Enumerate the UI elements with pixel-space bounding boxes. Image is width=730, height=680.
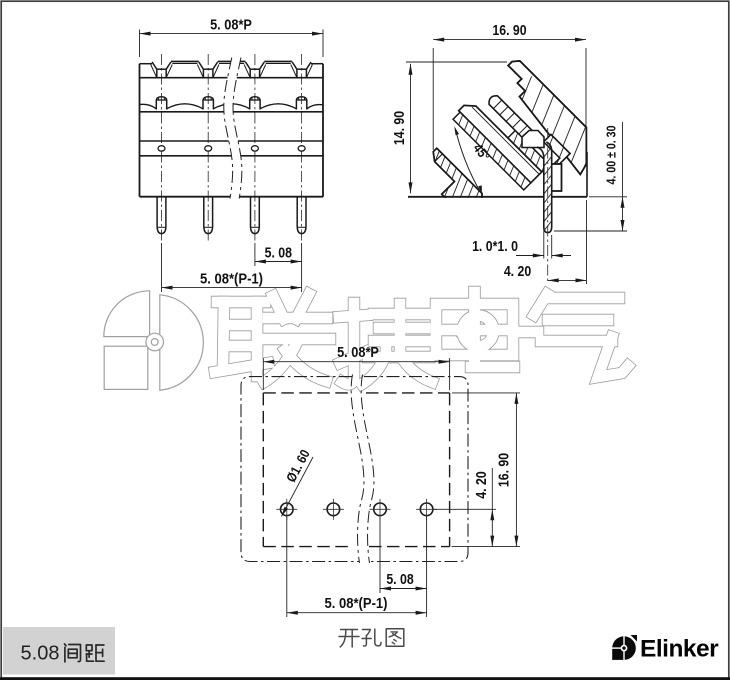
svg-text:14. 90: 14. 90 <box>391 111 407 145</box>
svg-text:16. 90: 16. 90 <box>496 453 512 487</box>
svg-text:5. 08: 5. 08 <box>265 244 293 260</box>
svg-text:5. 08*P: 5. 08*P <box>337 344 379 360</box>
svg-text:5. 08*P: 5. 08*P <box>210 17 252 33</box>
svg-text:Elinker: Elinker <box>640 636 719 663</box>
svg-text:4. 00 ± 0. 30: 4. 00 ± 0. 30 <box>605 126 619 185</box>
svg-text:5. 08*(P-1): 5. 08*(P-1) <box>200 271 263 287</box>
svg-text:5.08: 5.08 <box>21 643 60 665</box>
svg-text:5. 08*(P-1): 5. 08*(P-1) <box>324 595 387 611</box>
svg-text:4. 20: 4. 20 <box>504 263 531 279</box>
svg-text:4. 20: 4. 20 <box>473 471 489 498</box>
svg-text:5. 08: 5. 08 <box>386 571 414 587</box>
svg-text:16. 90: 16. 90 <box>492 22 526 38</box>
svg-text:1. 0*1. 0: 1. 0*1. 0 <box>472 238 518 254</box>
